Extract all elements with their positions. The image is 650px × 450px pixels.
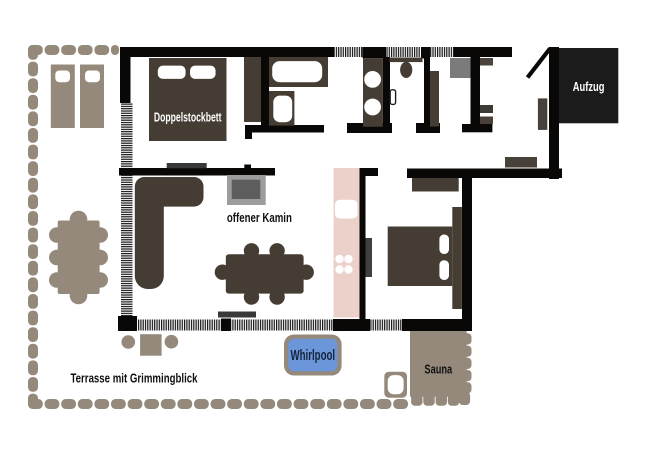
svg-text:Sauna: Sauna: [424, 362, 452, 377]
svg-text:Doppelstockbett: Doppelstockbett: [154, 109, 222, 124]
svg-text:Whirlpool: Whirlpool: [291, 348, 336, 364]
svg-text:offener Kamin: offener Kamin: [227, 210, 292, 225]
svg-text:Aufzug: Aufzug: [573, 79, 605, 94]
svg-text:Terrasse mit Grimmingblick: Terrasse mit Grimmingblick: [71, 370, 199, 385]
